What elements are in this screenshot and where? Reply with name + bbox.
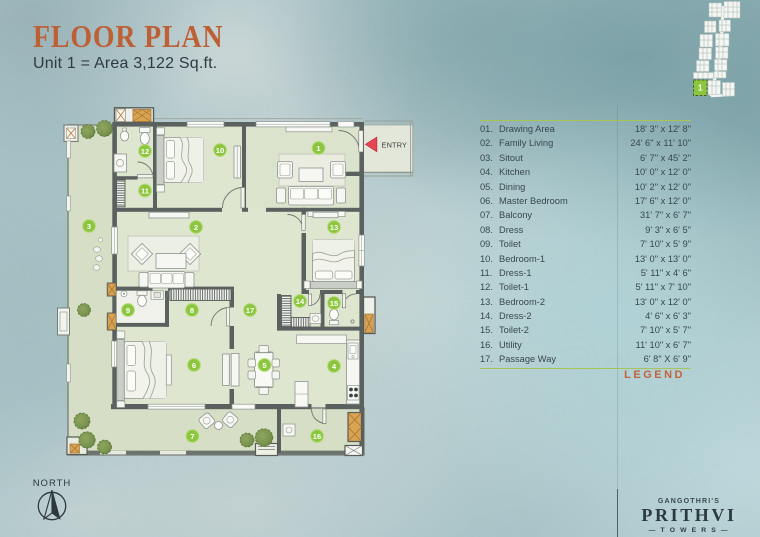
svg-text:12: 12 xyxy=(141,147,149,156)
svg-text:14: 14 xyxy=(296,297,305,306)
svg-text:17: 17 xyxy=(246,306,254,315)
svg-text:8: 8 xyxy=(190,306,194,315)
svg-text:7: 7 xyxy=(190,432,194,441)
svg-text:9: 9 xyxy=(126,306,130,315)
svg-text:6: 6 xyxy=(192,361,196,370)
svg-text:11: 11 xyxy=(141,186,150,195)
svg-text:10: 10 xyxy=(216,146,224,155)
svg-text:2: 2 xyxy=(194,223,198,232)
svg-text:3: 3 xyxy=(87,222,91,231)
svg-text:16: 16 xyxy=(313,432,321,441)
svg-text:1: 1 xyxy=(698,84,703,93)
svg-text:13: 13 xyxy=(330,223,338,232)
svg-text:15: 15 xyxy=(330,299,339,308)
svg-text:ENTRY: ENTRY xyxy=(382,141,408,150)
